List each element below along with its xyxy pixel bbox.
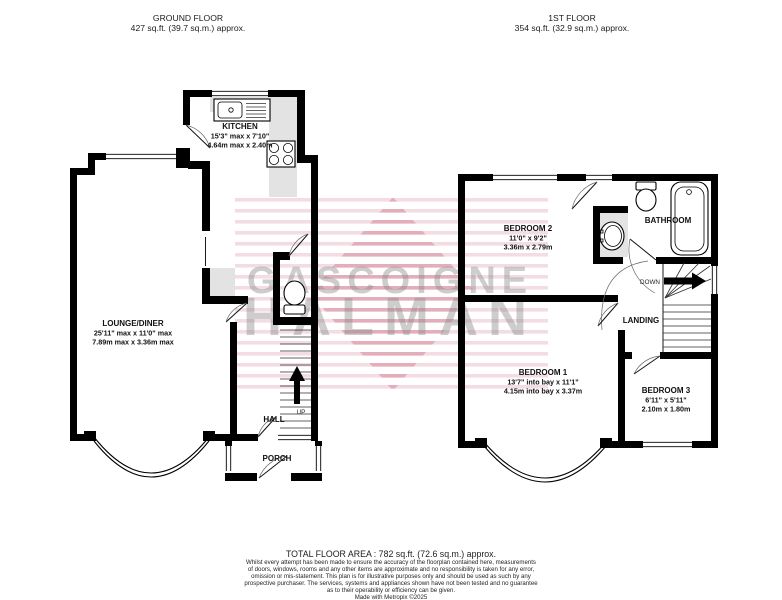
landing-label: LANDING [623,316,659,325]
bathroom-toilet-icon [636,182,656,211]
kitchen-sink-icon [214,99,270,121]
bedroom2-dims-metric: 3.36m x 2.79m [504,243,553,252]
bedroom1-label: BEDROOM 1 [519,368,568,377]
bedroom1-dims-imperial: 13'7" into bay x 11'1" [507,378,578,387]
lounge-dims-metric: 7.89m max x 3.36m max [92,338,174,347]
hall-label: HALL [263,415,284,424]
credit-line: Made with Metropix ©2025 [0,595,782,600]
disclaimer: Whilst every attempt has been made to en… [0,560,782,600]
floorplan-page: GROUND FLOOR 427 sq.ft. (39.7 sq.m.) app… [0,0,782,600]
footer: TOTAL FLOOR AREA : 782 sq.ft. (72.6 sq.m… [0,549,782,600]
lounge-dims-imperial: 25'11" max x 11'0" max [94,329,172,338]
bedroom2-label: BEDROOM 2 [504,224,553,233]
lounge-store-block [210,268,235,296]
basin-icon [599,222,624,250]
porch-label: PORCH [263,454,292,463]
down-arrow-icon [664,273,706,290]
up-label: UP [297,409,306,416]
down-label: DOWN [640,279,660,286]
lounge-bay-window [94,437,209,477]
wc-toilet-icon [284,281,305,314]
bedroom1-dims-metric: 4.15m into bay x 3.37m [504,387,582,396]
kitchen-dims-metric: 4.64m max x 2.40m [207,141,272,150]
bathroom-label: BATHROOM [645,216,692,225]
kitchen-dims-imperial: 15'3" max x 7'10" [211,132,270,141]
bedroom2-dims-imperial: 11'0" x 9'2" [509,234,547,243]
kitchen-label: KITCHEN [222,122,258,131]
first-floor-stairs [663,263,711,352]
watermark-text: GASCOIGNE HALMAN [243,260,537,347]
lounge-label: LOUNGE/DINER [102,319,164,328]
kitchen-unit-block [269,165,297,197]
floorplan-drawing: GASCOIGNE HALMAN [0,0,782,600]
bedroom1-bay-window [484,442,606,482]
bedroom3-dims-metric: 2.10m x 1.80m [642,405,691,414]
bedroom3-label: BEDROOM 3 [642,386,691,395]
bedroom3-dims-imperial: 6'11" x 5'11" [645,396,686,405]
